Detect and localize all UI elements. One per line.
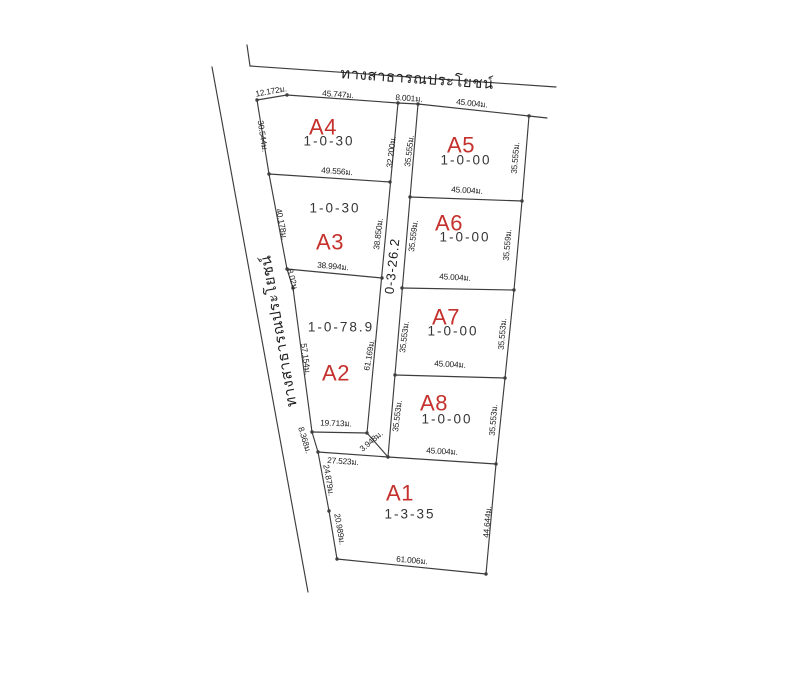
- dimension-label: 40.178ม.: [274, 208, 290, 241]
- corner-marker: [408, 195, 411, 198]
- dimension-label: 8.001ม.: [395, 92, 423, 104]
- dimension-label: 30.544ม.: [256, 120, 271, 153]
- plot-right-boundary: [486, 116, 529, 574]
- top-road-stub: [247, 45, 250, 66]
- corner-marker: [512, 288, 515, 291]
- dimension-label: 38.850ม.: [371, 218, 385, 251]
- dimension-label: 57.154ม.: [299, 343, 313, 376]
- dimension-label: 45.004ม.: [434, 358, 466, 370]
- plot-area-label-a3: 1-0-30: [309, 201, 360, 216]
- corner-marker: [267, 172, 270, 175]
- corner-marker: [335, 557, 338, 560]
- corner-marker: [527, 114, 530, 117]
- dimension-label: 45.004ม.: [439, 271, 471, 283]
- dimension-label: 35.555ม.: [509, 142, 522, 174]
- labels-layer: A41-0-30A51-0-00A31-0-30A61-0-00A21-0-78…: [255, 64, 522, 566]
- dimension-label: 12.172ม.: [255, 83, 288, 98]
- dimension-label: 61.006ม.: [396, 554, 428, 567]
- corner-marker: [484, 572, 487, 575]
- dimension-label: 35.555ม.: [402, 135, 416, 168]
- divider-a5-a6: [410, 197, 522, 201]
- plot-area-label-a2: 1-0-78.9: [308, 320, 374, 335]
- dimension-label: 20.989ม.: [332, 513, 347, 546]
- top-road-name: ทางสาธารณประโยชน์: [340, 64, 495, 93]
- dimension-label: 3.948ม.: [357, 428, 384, 453]
- corner-marker: [365, 431, 368, 434]
- dimension-label: 44.644ม.: [481, 506, 494, 538]
- plot-area-label-a5: 1-0-00: [440, 153, 491, 168]
- a2-bottom-line: [312, 432, 367, 433]
- corner-marker: [494, 462, 497, 465]
- dimension-label: 19.713ม.: [320, 417, 352, 428]
- dimension-label: 35.553ม.: [496, 318, 509, 350]
- dimension-label: 35.559ม.: [501, 229, 514, 261]
- corner-marker: [310, 430, 313, 433]
- dimension-label: 45.004ม.: [426, 445, 458, 457]
- divider-a7-a8: [395, 375, 505, 378]
- dimension-label: 8.02ม.: [285, 268, 301, 293]
- corner-marker: [255, 98, 258, 101]
- dimension-label: 32.200ม.: [384, 136, 398, 169]
- corner-marker: [520, 199, 523, 202]
- corner-marker: [386, 455, 389, 458]
- plot-id-label-a3: A3: [316, 230, 344, 255]
- dimension-label: 38.994ม.: [317, 260, 349, 273]
- plot-id-label-a2: A2: [322, 361, 350, 386]
- plot-area-label-a4: 1-0-30: [303, 134, 354, 149]
- plot-area-label-a6: 1-0-00: [439, 230, 490, 245]
- corner-marker: [400, 286, 403, 289]
- corner-marker: [393, 373, 396, 376]
- corner-marker: [388, 180, 391, 183]
- corner-marker: [327, 509, 330, 512]
- dimension-label: 35.553ม.: [487, 404, 500, 436]
- dimension-label: 8.368ม.: [296, 426, 313, 455]
- divider-a6-a7: [402, 288, 514, 290]
- plot-area-label-a1: 1-3-35: [384, 507, 435, 522]
- survey-diagram: A41-0-30A51-0-00A31-0-30A61-0-00A21-0-78…: [0, 0, 800, 674]
- dimension-label: 45.004ม.: [456, 96, 488, 109]
- corner-marker: [316, 450, 319, 453]
- land-plot-map: A41-0-30A51-0-00A31-0-30A61-0-00A21-0-78…: [0, 0, 800, 674]
- plot-area-label-a8: 1-0-00: [421, 412, 472, 427]
- plot-id-label-a1: A1: [386, 481, 414, 506]
- dimension-label: 49.556ม.: [321, 165, 353, 177]
- corner-marker: [285, 93, 288, 96]
- corner-marker: [503, 376, 506, 379]
- plot-area-label-a7: 1-0-00: [427, 324, 478, 339]
- dimension-label: 45.004ม.: [451, 184, 483, 196]
